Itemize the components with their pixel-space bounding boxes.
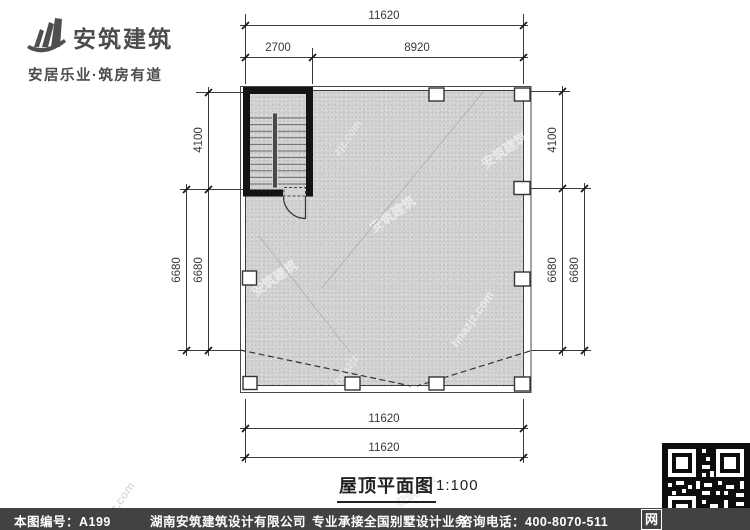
dim-bottom-outer: 11620	[368, 442, 399, 454]
company-name: 安筑建筑	[73, 20, 173, 54]
footer-bar: 本图编号：A199 湖南安筑建筑设计有限公司 专业承接全国别墅设计业务 咨询电话…	[0, 508, 750, 530]
dim-left-outer: 6680	[171, 257, 183, 283]
company-slogan: 安居乐业·筑房有道	[28, 64, 173, 85]
drawing-serial: 本图编号：A199	[14, 511, 111, 530]
web-badge: 网	[641, 509, 662, 530]
dim-top-left: 2700	[265, 42, 291, 54]
logo-building-icon	[25, 16, 69, 58]
footer-company: 湖南安筑建筑设计有限公司	[150, 511, 306, 530]
footer-service: 专业承接全国别墅设计业务	[312, 511, 468, 530]
footer-phone: 咨询电话：400-8070-511	[460, 511, 608, 530]
dim-right-upper: 4100	[547, 127, 559, 153]
roof-slab-surface	[245, 90, 524, 386]
dim-left-upper: 4100	[193, 127, 205, 153]
dim-top-right: 8920	[404, 42, 430, 54]
drawing-scale: 1:100	[436, 477, 479, 494]
drawing-title: 屋顶平面图	[337, 472, 436, 503]
dim-right-outer: 6680	[569, 257, 581, 283]
dim-bottom-inner: 11620	[368, 413, 399, 425]
blueprint-page: 安筑建筑 安居乐业·筑房有道 安筑建筑 安筑建筑 安筑建筑 hnazjz.com…	[0, 0, 750, 530]
dim-top-total: 11620	[368, 10, 399, 22]
dim-left-lower: 6680	[193, 257, 205, 283]
dim-right-lower: 6680	[547, 257, 559, 283]
company-logo: 安筑建筑 安居乐业·筑房有道	[25, 16, 173, 85]
